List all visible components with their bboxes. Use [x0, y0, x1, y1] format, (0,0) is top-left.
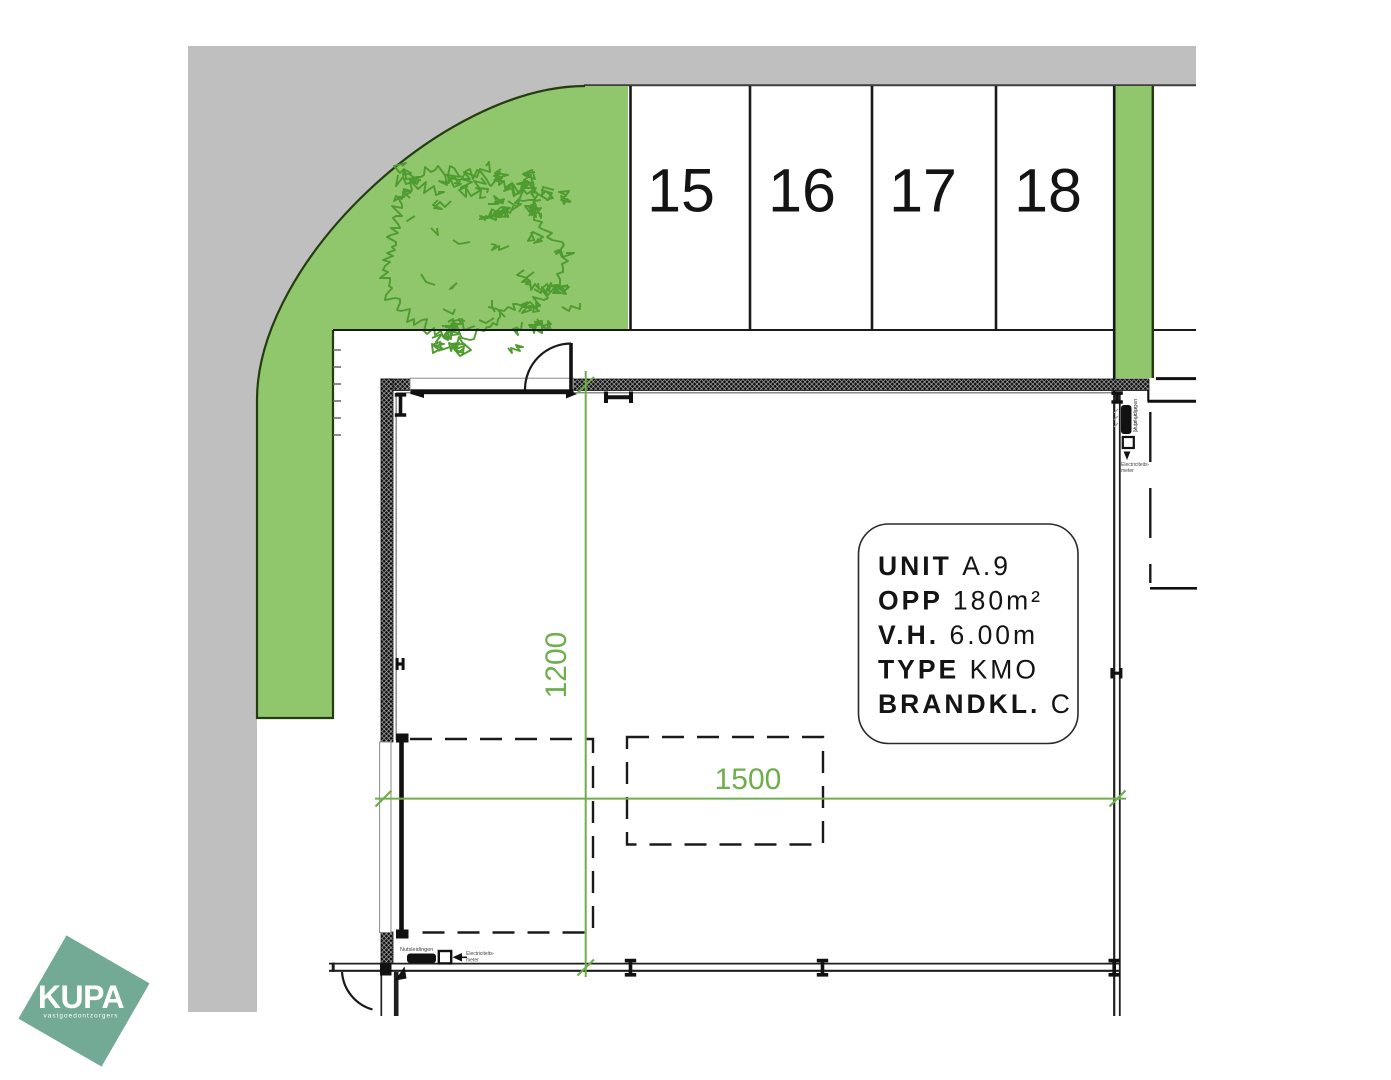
svg-text:17: 17 [889, 157, 957, 225]
svg-text:V.H. 6.00m: V.H. 6.00m [878, 620, 1038, 650]
svg-text:1200: 1200 [540, 632, 573, 699]
svg-text:1500: 1500 [715, 763, 782, 796]
svg-text:Nutsleidingen: Nutsleidingen [400, 947, 433, 953]
svg-text:TYPE KMO: TYPE KMO [878, 655, 1039, 685]
svg-text:meter: meter [1121, 468, 1134, 474]
svg-text:15: 15 [647, 157, 715, 225]
svg-text:16: 16 [768, 157, 836, 225]
svg-text:BRANDKL. C: BRANDKL. C [878, 689, 1073, 719]
svg-text:UNIT A.9: UNIT A.9 [878, 551, 1011, 581]
svg-text:meter: meter [466, 958, 479, 964]
svg-text:KUPA: KUPA [38, 979, 125, 1015]
svg-text:18: 18 [1014, 157, 1082, 225]
svg-text:OPP 180m²: OPP 180m² [878, 586, 1043, 616]
svg-text:vastgoedontzorgers: vastgoedontzorgers [43, 1013, 118, 1020]
svg-text:Electriciteits-: Electriciteits- [466, 951, 495, 957]
svg-text:Nutsleidingen: Nutsleidingen [1133, 399, 1139, 432]
